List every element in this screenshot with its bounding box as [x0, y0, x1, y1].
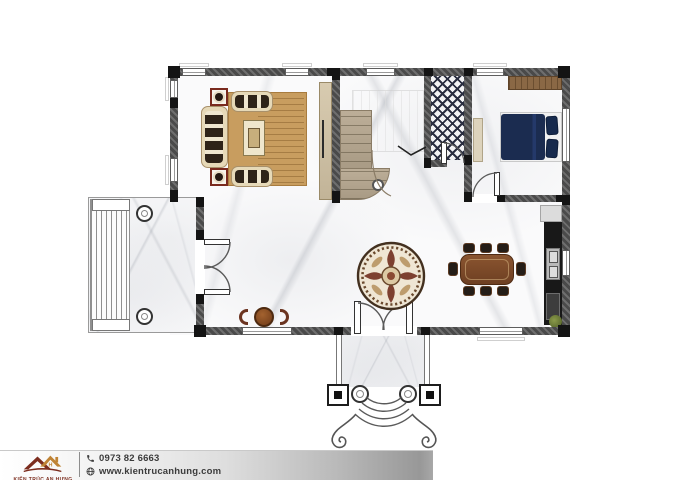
globe-icon [86, 467, 95, 476]
window-top [366, 68, 395, 76]
phone-icon [86, 454, 95, 463]
dining-chair [480, 243, 492, 253]
wall-bathroom-bedroom [464, 68, 472, 202]
bedroom-door-leaf [494, 172, 500, 196]
website-row: www.kientrucanhung.com [86, 465, 221, 478]
porch-square-column [327, 384, 349, 406]
bathroom-door-leaf [441, 142, 447, 164]
wall-post [464, 68, 473, 76]
wall-bathroom-left [424, 68, 431, 168]
wall-post [168, 66, 180, 78]
svg-text:H: H [49, 463, 53, 469]
bathroom-tile-floor [431, 76, 464, 160]
wall-post [558, 325, 570, 337]
wall-post [334, 327, 343, 335]
wall-post [497, 195, 505, 202]
bedroom-dresser [473, 118, 483, 162]
wall-post [170, 190, 178, 202]
step-scroll-volutes [332, 414, 436, 447]
footer-contact: 0973 82 6663 www.kientrucanhung.com [86, 452, 221, 478]
window-top [182, 68, 206, 76]
entrance-porch-floor [341, 335, 425, 387]
dining-chair [463, 286, 475, 296]
window-sill [477, 337, 525, 341]
wall-post [332, 191, 340, 203]
dining-chair [497, 243, 509, 253]
porch-round-column [351, 385, 369, 403]
window-bottom [242, 327, 292, 335]
wall-post [424, 158, 431, 168]
floorplan-image: H KIẾN TRÚC AN HƯNG 0973 82 6663 www.kie… [0, 0, 676, 480]
wall-post [556, 195, 563, 202]
dining-chair [448, 262, 458, 276]
dining-chair [516, 262, 526, 276]
window-sill [165, 155, 169, 185]
window-right-kitchen [562, 250, 570, 276]
wall-post [562, 195, 570, 205]
entry-door-leaf [406, 301, 413, 334]
deck-end-cap [92, 199, 130, 211]
window-sill [473, 63, 507, 67]
window-sill [179, 63, 209, 67]
porch-square-column [419, 384, 441, 406]
window-left [170, 80, 178, 98]
dining-chair [480, 286, 492, 296]
side-table-lamp [210, 88, 228, 106]
double-roof-logo-icon: H [20, 451, 66, 473]
wall-post [332, 68, 340, 80]
wall-post [170, 98, 178, 108]
dining-chair [497, 286, 509, 296]
wall-post [464, 155, 472, 165]
wall-post [196, 230, 204, 240]
tv-panel [322, 120, 324, 158]
staircase-steps [340, 110, 372, 172]
window-sill [165, 77, 169, 101]
bed-pillow [545, 139, 558, 159]
phone-number: 0973 82 6663 [99, 453, 160, 464]
wall-post [464, 192, 472, 202]
phone-row: 0973 82 6663 [86, 452, 221, 465]
porch-round-column [136, 205, 153, 222]
side-porch-deck-steps [90, 199, 130, 331]
cafe-table [254, 307, 274, 327]
dining-chair [463, 243, 475, 253]
coffee-table [243, 120, 265, 156]
footer-divider [79, 452, 80, 477]
porch-round-column [136, 308, 153, 325]
window-right-bedroom [562, 108, 570, 162]
dining-table [460, 254, 514, 285]
wall-post [558, 66, 570, 78]
window-left [170, 158, 178, 182]
window-top [285, 68, 309, 76]
tv-cabinet [319, 82, 332, 200]
brand-logo-block: H KIẾN TRÚC AN HƯNG [12, 451, 74, 479]
porch-rail [336, 335, 342, 388]
window-bottom [479, 327, 523, 335]
stair-newel-post [372, 179, 384, 191]
porch-door-leaf [204, 289, 230, 295]
sofa-bottom-cushions [235, 170, 269, 183]
bedroom-wardrobe [508, 76, 562, 90]
window-sill [282, 63, 312, 67]
bed-pillow [545, 116, 558, 136]
sink-bowl [549, 251, 558, 263]
wall-partition-stairs [332, 68, 340, 203]
porch-round-column [399, 385, 417, 403]
wall-post [424, 68, 433, 76]
side-table-lamp [210, 168, 228, 186]
website-url: www.kientrucanhung.com [99, 466, 221, 477]
porch-door-leaf [204, 239, 230, 245]
cafe-chair [239, 309, 248, 325]
porch-rail [424, 335, 430, 388]
wall-post [196, 325, 204, 335]
wall-post [196, 294, 204, 304]
deck-end-cap [92, 319, 130, 331]
sink-bowl [549, 266, 558, 278]
window-sill [363, 63, 398, 67]
wall-post [196, 197, 204, 207]
kitchen-cabinet [540, 205, 562, 222]
window-top [476, 68, 504, 76]
porch-door-opening [195, 240, 205, 294]
sofa-main-cushions [205, 111, 223, 163]
wall-post [421, 327, 430, 335]
sofa-top-cushions [235, 95, 269, 108]
bed-blanket [501, 114, 545, 160]
entry-door-leaf [354, 301, 361, 334]
